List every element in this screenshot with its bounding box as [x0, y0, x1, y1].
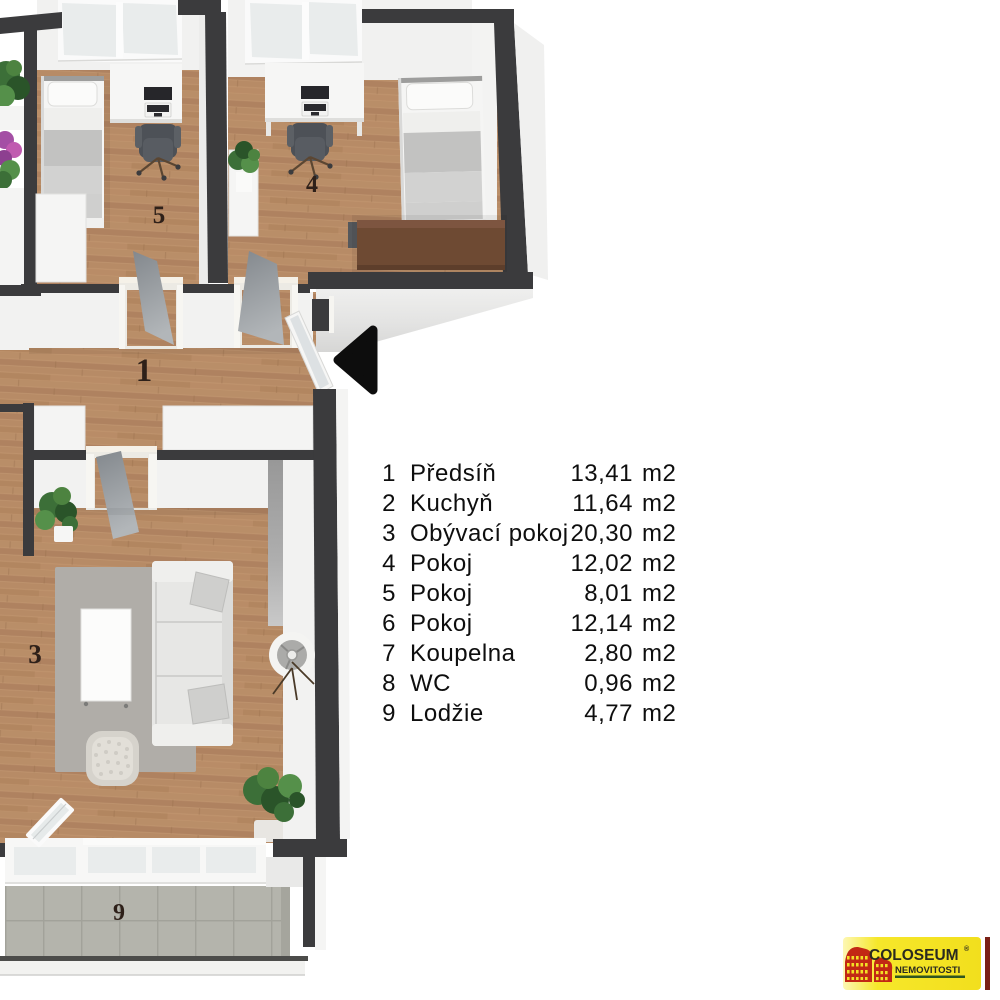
svg-text:m2: m2: [642, 520, 676, 547]
svg-text:Obývací pokoj: Obývací pokoj: [410, 520, 569, 547]
svg-text:Pokoj: Pokoj: [410, 550, 473, 577]
svg-text:7: 7: [382, 640, 396, 667]
svg-text:5: 5: [382, 580, 396, 607]
svg-text:8,01: 8,01: [584, 580, 633, 607]
svg-text:13,41: 13,41: [570, 460, 633, 487]
svg-text:0,96: 0,96: [584, 670, 633, 697]
svg-text:1: 1: [382, 460, 396, 487]
svg-text:Předsíň: Předsíň: [410, 460, 496, 487]
svg-text:m2: m2: [642, 460, 676, 487]
svg-text:12,02: 12,02: [570, 550, 633, 577]
svg-text:Koupelna: Koupelna: [410, 640, 516, 667]
svg-text:11,64: 11,64: [572, 490, 633, 517]
svg-text:®: ®: [964, 945, 970, 953]
svg-text:8: 8: [382, 670, 396, 697]
svg-text:2: 2: [382, 490, 396, 517]
svg-text:Pokoj: Pokoj: [410, 580, 473, 607]
svg-text:Pokoj: Pokoj: [410, 610, 473, 637]
svg-text:9: 9: [382, 700, 396, 727]
svg-text:m2: m2: [642, 580, 676, 607]
svg-text:4: 4: [306, 172, 318, 198]
svg-text:9: 9: [113, 900, 125, 926]
svg-text:1: 1: [136, 353, 153, 389]
svg-text:m2: m2: [642, 550, 676, 577]
svg-text:4,77: 4,77: [584, 700, 633, 727]
svg-text:3: 3: [28, 639, 42, 669]
svg-text:m2: m2: [642, 700, 676, 727]
svg-text:m2: m2: [642, 670, 676, 697]
svg-text:20,30: 20,30: [570, 520, 633, 547]
svg-text:m2: m2: [642, 490, 676, 517]
svg-text:NEMOVITOSTI: NEMOVITOSTI: [895, 965, 960, 976]
svg-text:m2: m2: [642, 610, 676, 637]
svg-text:Lodžie: Lodžie: [410, 700, 484, 727]
svg-text:3: 3: [382, 520, 396, 547]
svg-text:4: 4: [382, 550, 396, 577]
svg-text:COLOSEUM: COLOSEUM: [869, 947, 959, 964]
svg-text:12,14: 12,14: [570, 610, 633, 637]
svg-text:WC: WC: [410, 670, 451, 697]
svg-text:Kuchyň: Kuchyň: [410, 490, 493, 517]
svg-text:m2: m2: [642, 640, 676, 667]
svg-text:5: 5: [153, 202, 166, 229]
svg-text:6: 6: [382, 610, 396, 637]
svg-text:2,80: 2,80: [584, 640, 633, 667]
